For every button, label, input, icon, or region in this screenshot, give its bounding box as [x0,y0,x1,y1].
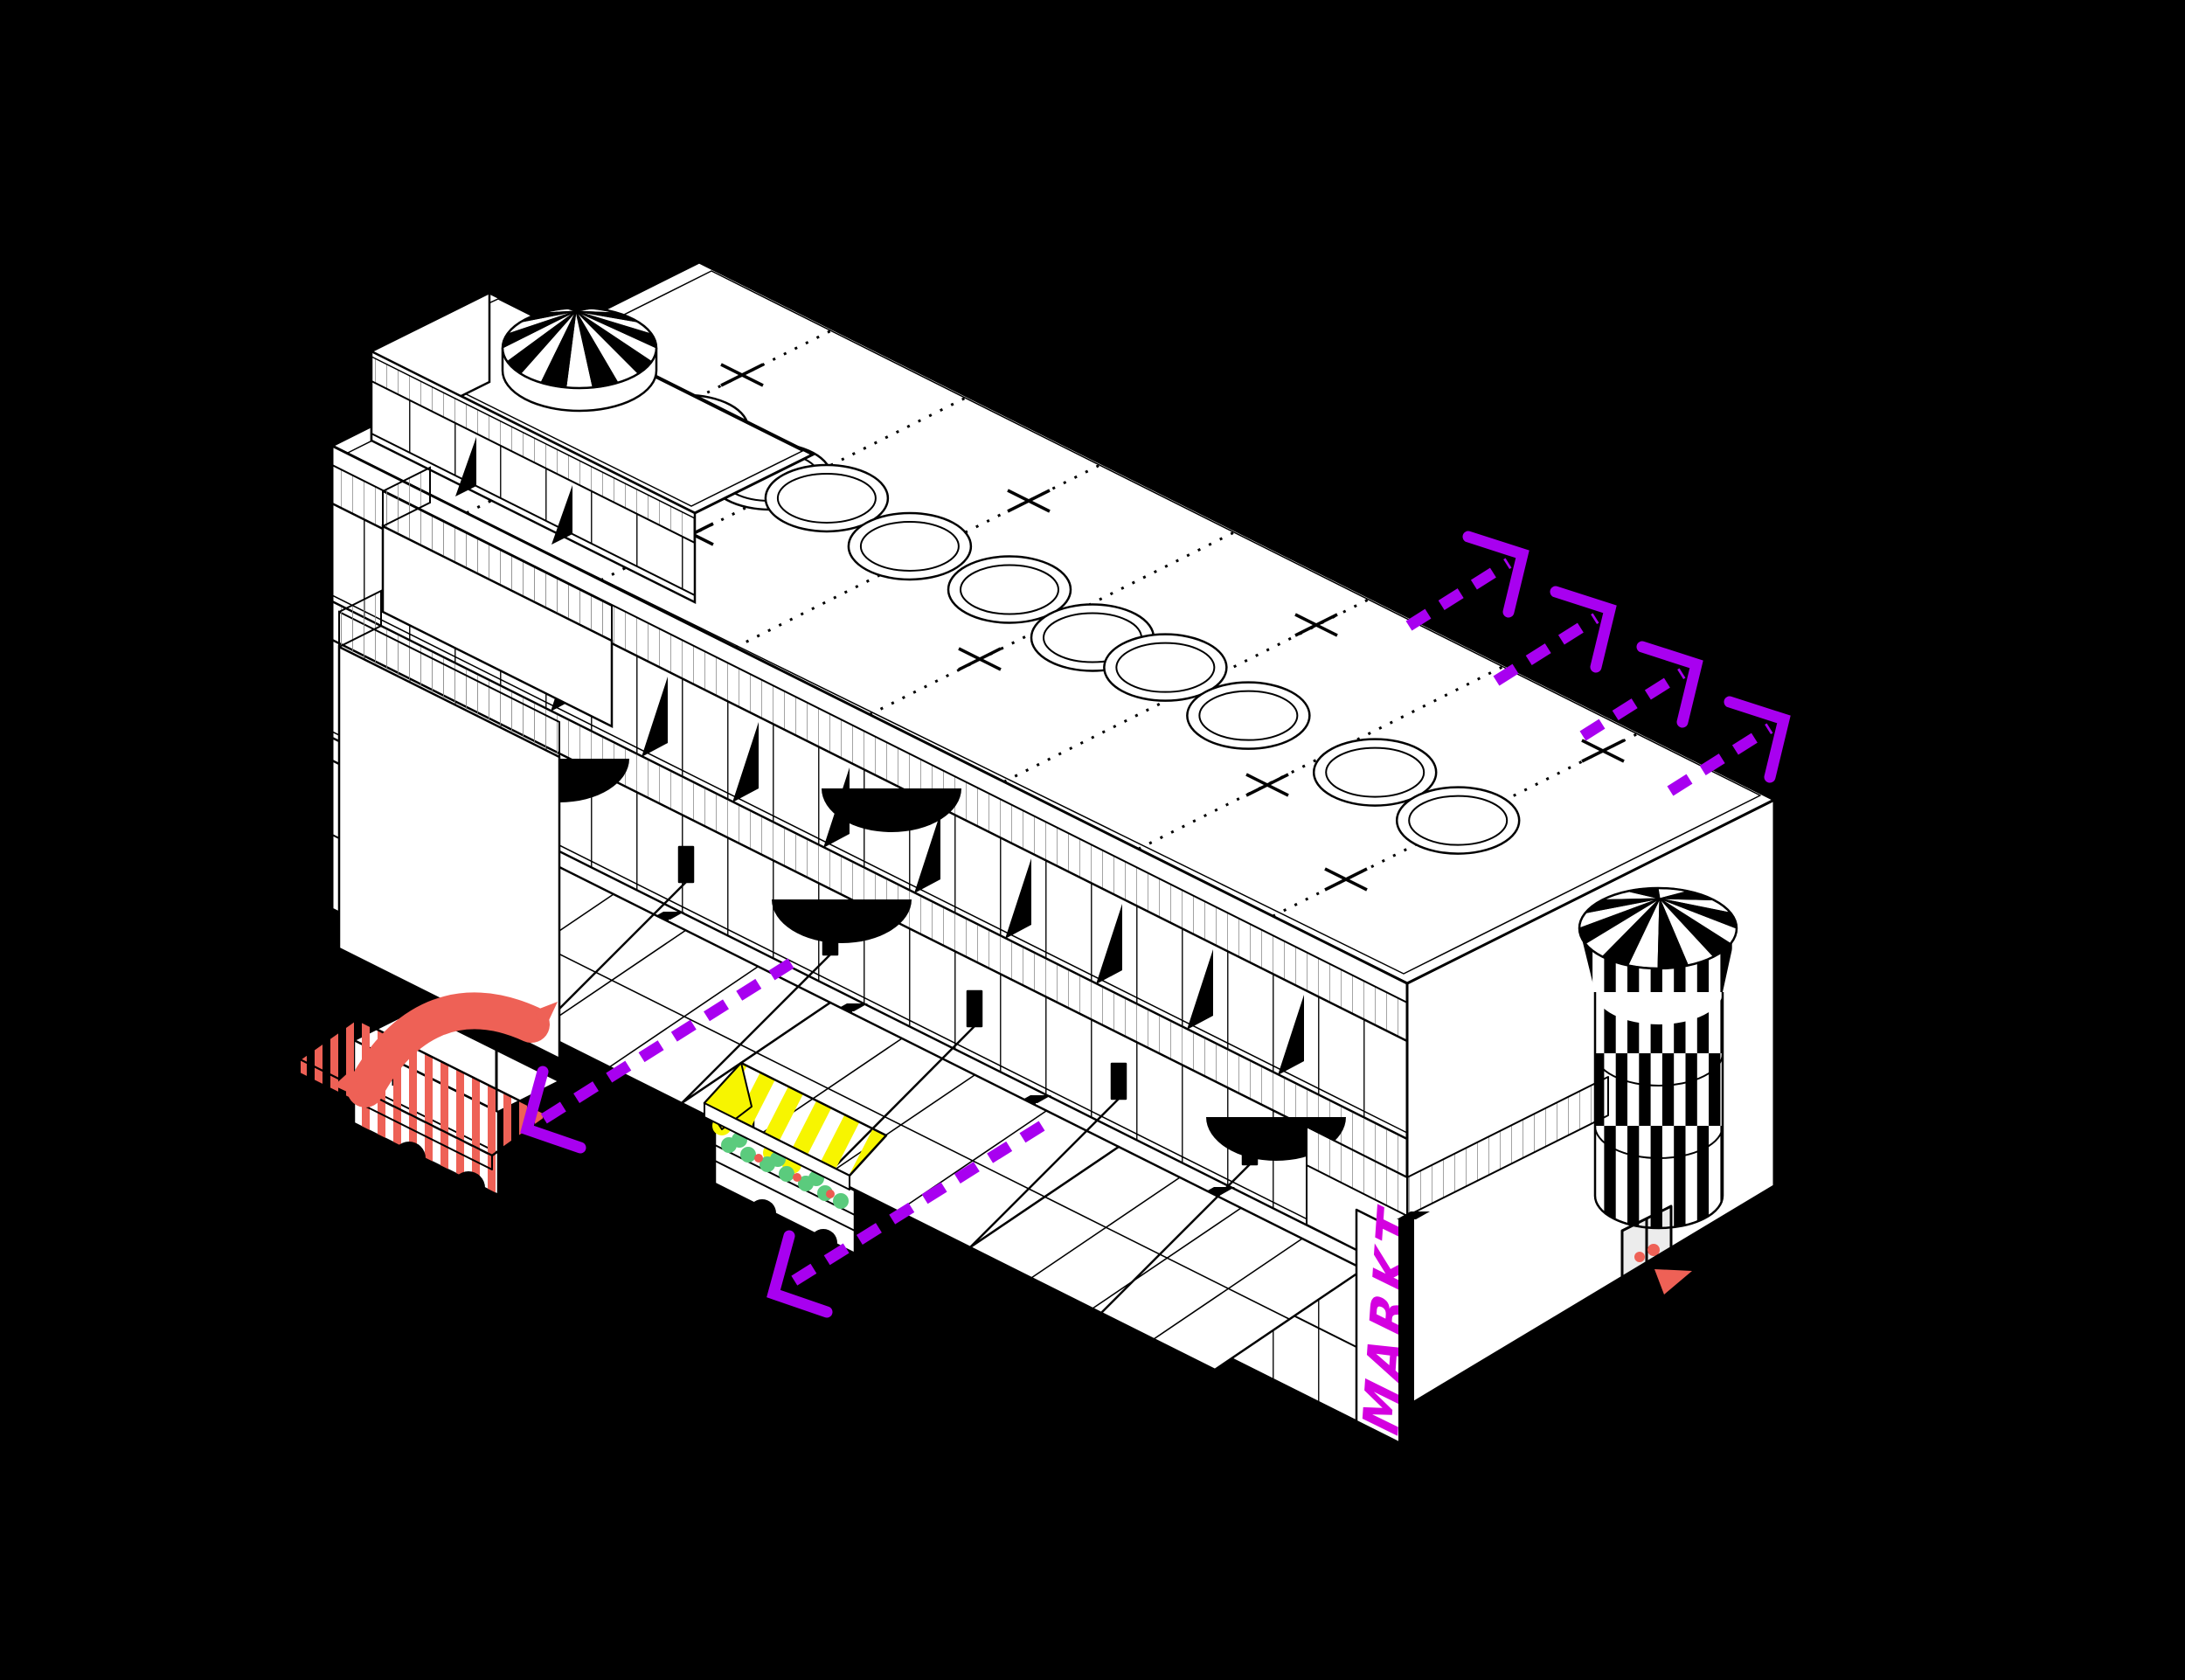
tower-striped-cone [1579,888,1737,968]
cable-plate [968,991,982,1026]
cart-wheel-cutout [392,1142,426,1175]
circus-stripe-tower [1579,888,1737,1231]
skylight-ring [1397,788,1519,854]
flow-arrow-up-dash [1409,563,1509,626]
produce-greens [833,1193,849,1209]
door-handle [1634,1252,1645,1262]
produce-tomato [793,1173,801,1182]
cable-plate [679,847,693,882]
cart-wheel-cutout [452,1171,485,1204]
flow-arrow-up-head [1642,647,1696,722]
hot-dog-cart [300,1002,559,1204]
diagram-canvas: MARKT [0,0,2185,1680]
tower-band-2 [1593,1053,1724,1126]
tent-striped-dome [503,308,656,388]
skylight-ring [849,513,971,580]
tower-band-3 [1593,1126,1724,1231]
cable-plate [1243,1129,1257,1164]
flow-arrow-up-head [1468,537,1523,612]
roof-circus-tent [503,308,656,411]
skylight-ring [1187,683,1309,749]
van-wheel-cutout [748,1199,776,1227]
cable-plate [1112,1064,1126,1099]
flow-arrow-up-dash [1496,618,1596,681]
produce-greens [779,1166,794,1182]
produce-tomato [754,1154,763,1163]
flow-arrow-up-head [1730,702,1784,777]
flow-arrow-up-head [1556,592,1610,667]
flow-arrow-up-dash [1583,673,1682,736]
produce-tomato [826,1190,835,1198]
cable-plate [823,920,837,955]
produce-greens [740,1147,756,1163]
diagram-stage: MARKT [0,0,2185,1680]
